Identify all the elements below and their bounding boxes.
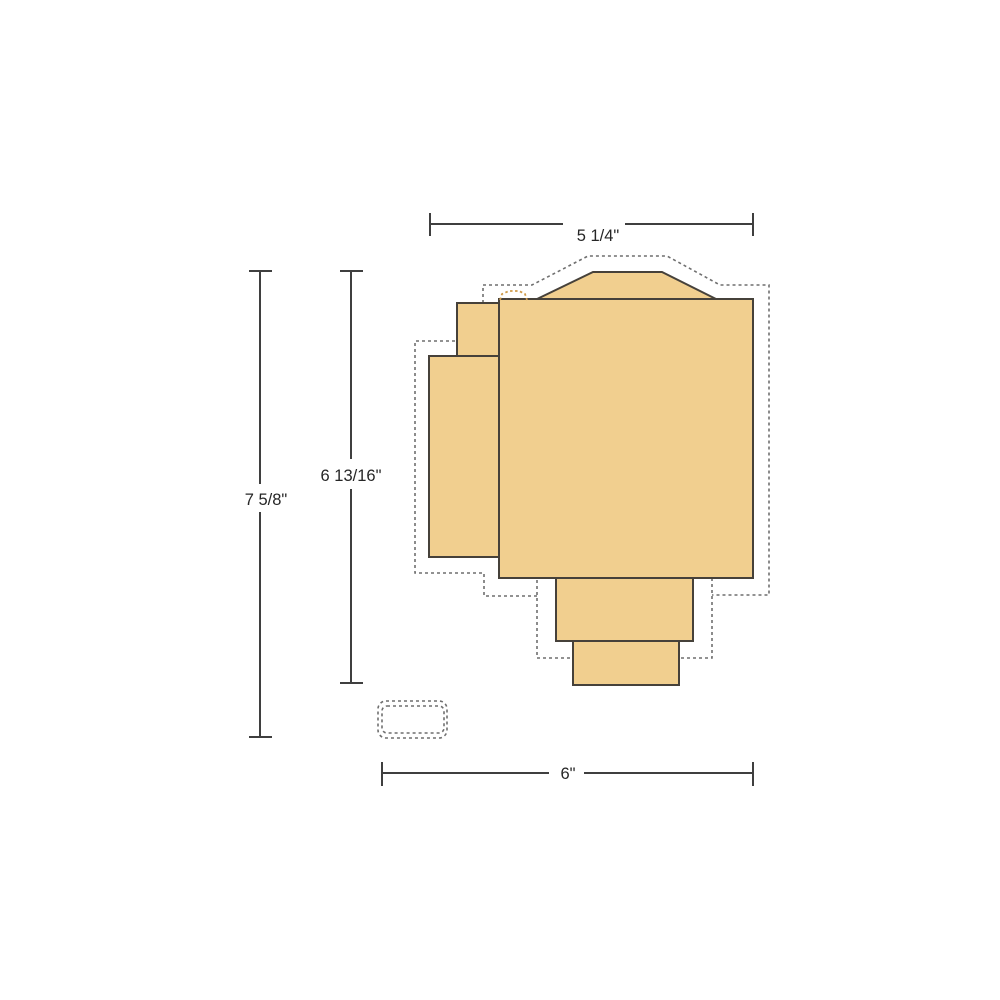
body-upper-left-step	[457, 303, 500, 356]
dim-label-width-overall: 6"	[560, 765, 575, 783]
dim-label-width-top: 5 1/4"	[577, 227, 620, 245]
product-dimension-diagram: 5 1/4" 7 5/8" 6 13/16" 6"	[0, 0, 1000, 1000]
body-left-wing	[429, 356, 500, 557]
body-top-cap	[535, 272, 718, 300]
body-lower-step-2	[573, 641, 679, 685]
latch-outline-inner	[382, 706, 444, 733]
dimension-height-overall: 7 5/8"	[245, 271, 288, 737]
dim-label-height-overall: 7 5/8"	[245, 491, 288, 509]
body-main-plate	[499, 299, 753, 578]
dimension-height-body: 6 13/16"	[321, 271, 382, 683]
body-lower-step-1	[556, 578, 693, 641]
product-body-group	[429, 272, 753, 685]
dimension-diagram-page: 5 1/4" 7 5/8" 6 13/16" 6"	[0, 0, 1000, 1000]
dimension-width-overall: 6"	[382, 762, 753, 786]
dim-label-height-body: 6 13/16"	[321, 467, 382, 485]
dimension-width-top: 5 1/4"	[430, 213, 753, 245]
